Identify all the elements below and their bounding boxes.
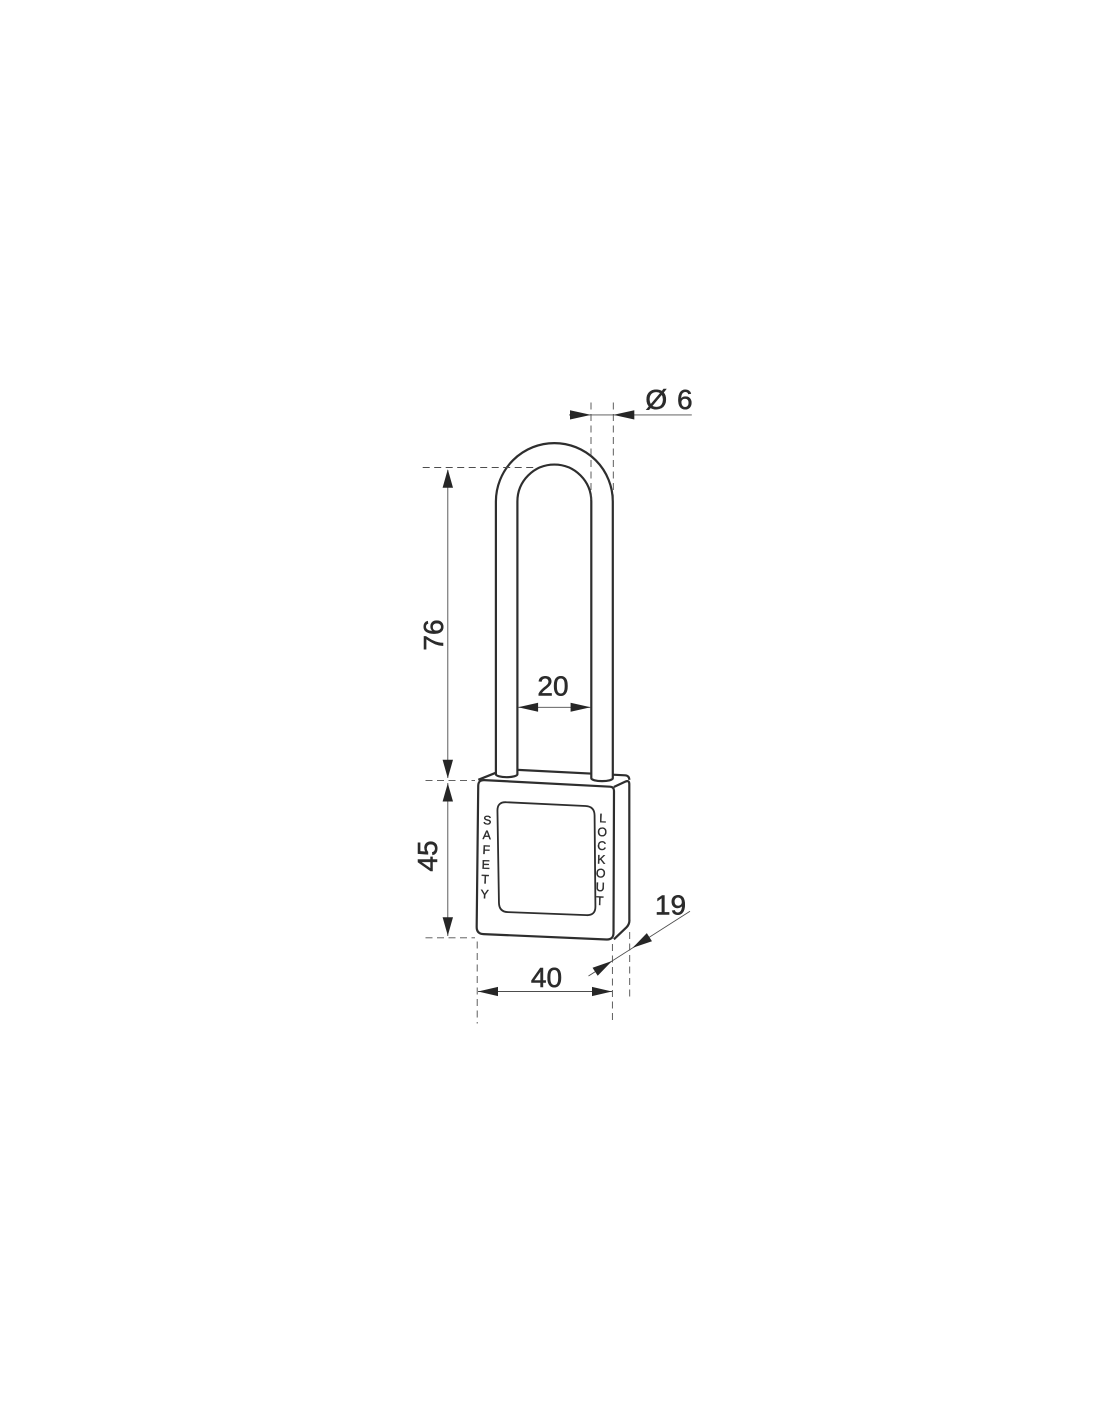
svg-text:Ø 6: Ø 6 (645, 384, 693, 415)
svg-text:76: 76 (418, 619, 449, 650)
svg-text:20: 20 (537, 671, 568, 702)
svg-text:E: E (481, 858, 490, 872)
svg-text:T: T (481, 872, 489, 886)
svg-text:O: O (596, 866, 606, 880)
svg-text:C: C (597, 839, 606, 853)
svg-text:K: K (597, 853, 606, 867)
svg-text:L: L (599, 811, 606, 825)
svg-text:O: O (597, 825, 607, 839)
svg-text:Y: Y (480, 887, 489, 901)
svg-text:A: A (482, 828, 491, 842)
svg-text:19: 19 (655, 890, 686, 921)
svg-text:T: T (596, 894, 604, 908)
svg-text:F: F (482, 843, 490, 857)
svg-text:40: 40 (531, 962, 562, 993)
svg-text:45: 45 (412, 840, 443, 871)
svg-text:S: S (483, 813, 492, 827)
svg-text:U: U (596, 880, 605, 894)
